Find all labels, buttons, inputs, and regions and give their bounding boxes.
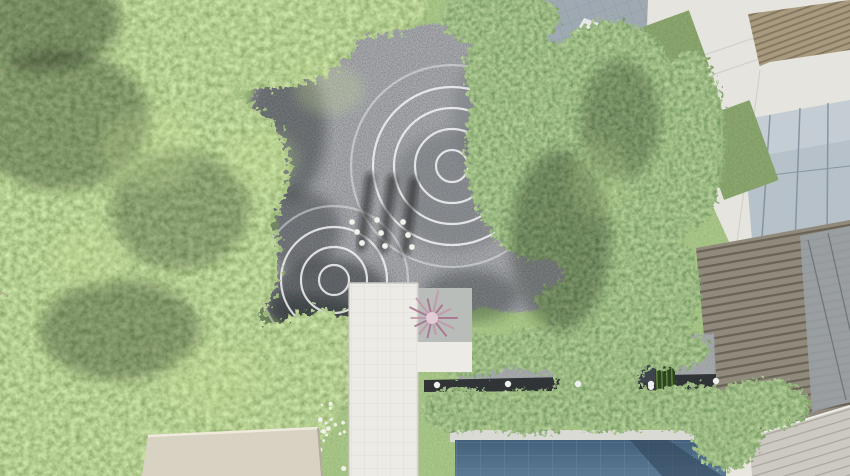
planter-shrub	[691, 390, 763, 470]
junction-pad	[410, 288, 472, 345]
swimming-pool	[450, 430, 728, 476]
pavilion-roofs	[142, 428, 322, 476]
landscape-rendering	[0, 0, 850, 476]
